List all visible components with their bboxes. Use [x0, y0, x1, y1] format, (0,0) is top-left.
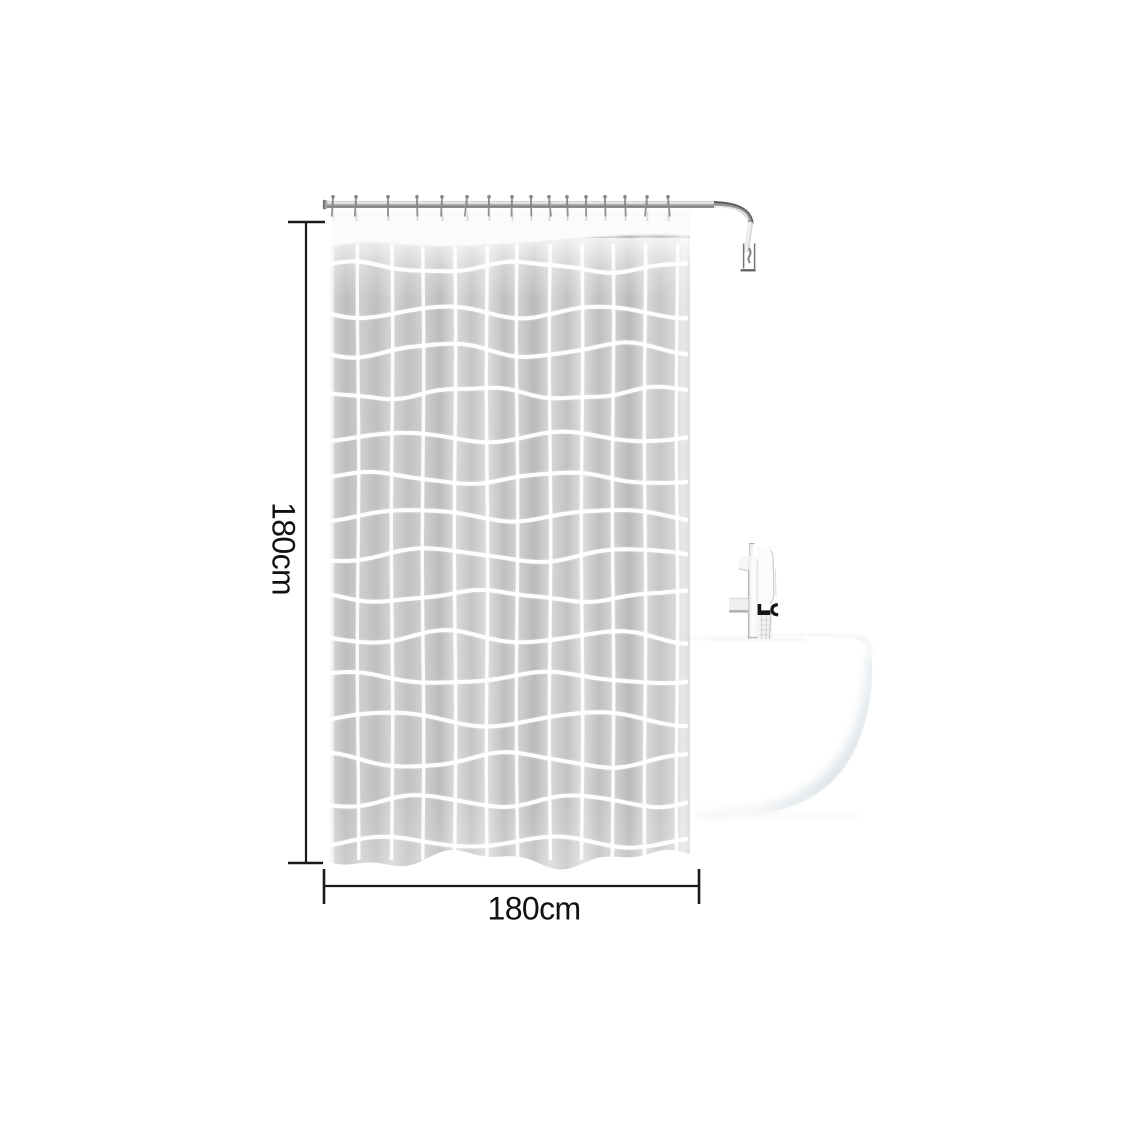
svg-text:180cm: 180cm: [488, 891, 581, 927]
svg-text:180cm: 180cm: [266, 502, 302, 595]
